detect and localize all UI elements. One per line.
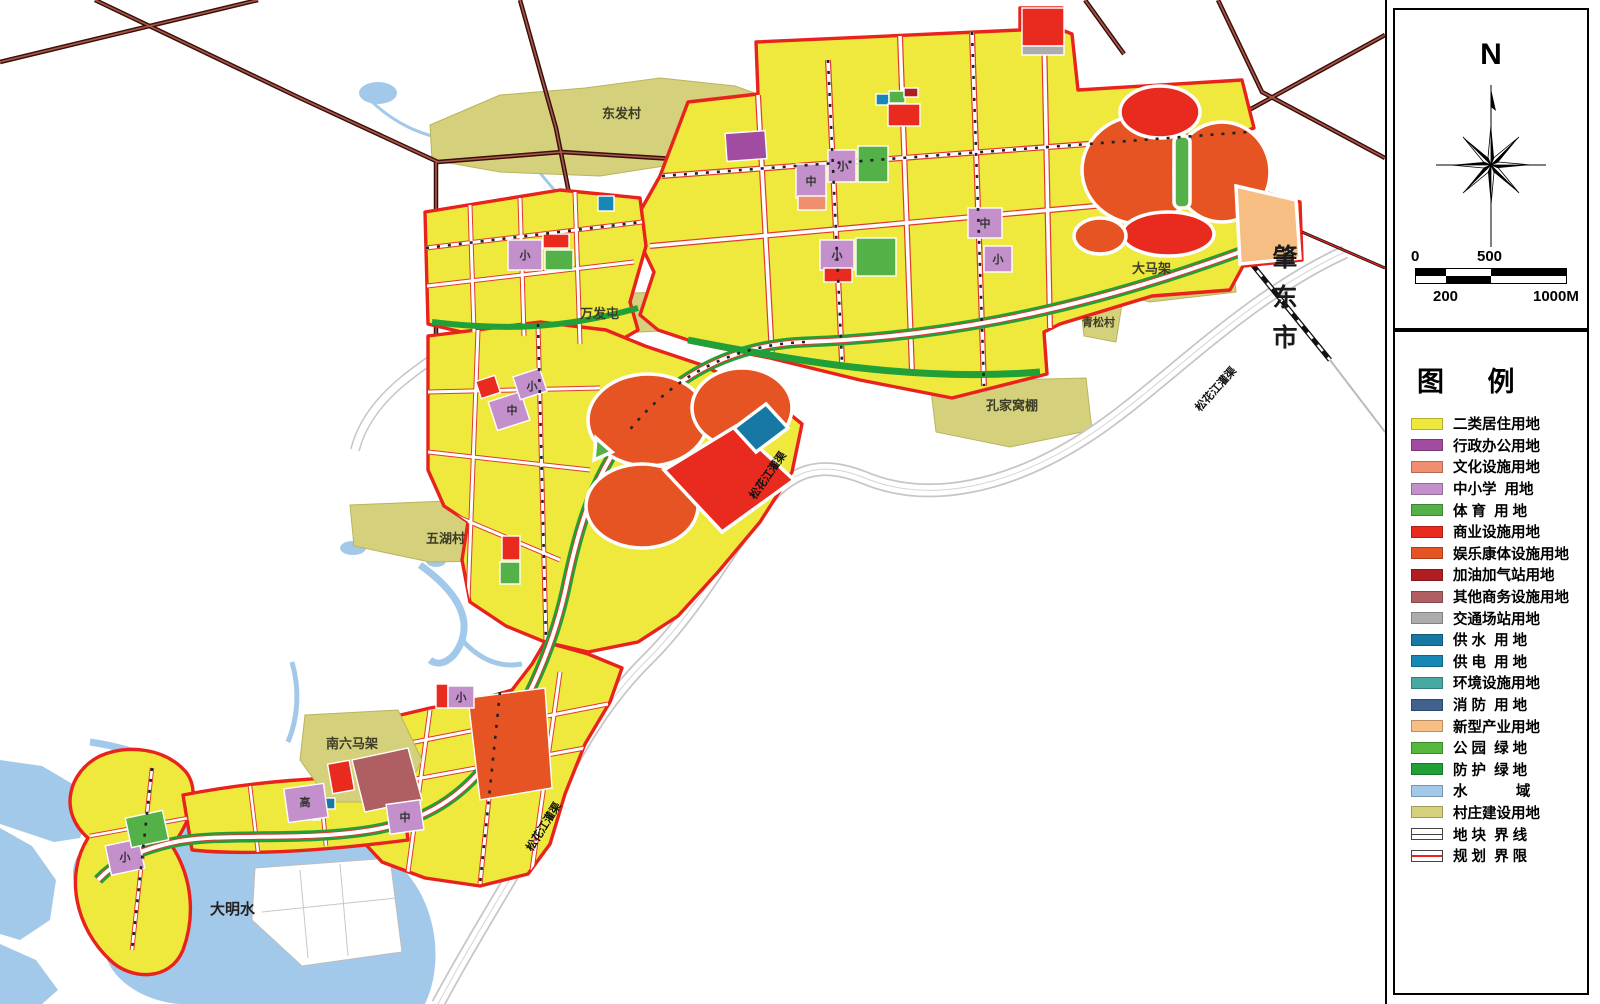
legend-label: 新型产业用地 [1453,716,1540,737]
legend-panel: 图 例 二类居住用地行政办公用地文化设施用地中小学 用地体 育 用 地商业设施用… [1393,330,1589,995]
label-qingsongcun: 青松村 [1082,315,1115,329]
north-scale-panel: N 0 500 [1393,8,1589,330]
label-kongjiawopeng: 孔家窝棚 [986,398,1038,413]
marker-middle: 中 [980,216,991,230]
scale-tick-1000: 1000M [1533,288,1579,305]
legend-item: 防 护 绿 地 [1411,759,1587,781]
legend-swatch [1411,634,1443,646]
legend-swatch [1411,526,1443,538]
legend-item: 娱乐康体设施用地 [1411,543,1587,565]
marker-primary: 小 [455,690,467,704]
legend-swatch [1411,418,1443,430]
legend-swatch [1411,828,1443,840]
compass-rose-icon [1426,80,1556,250]
marker-primary: 小 [519,248,531,262]
scale-tick-500: 500 [1477,248,1502,265]
marker-primary: 小 [119,850,131,864]
legend-label: 环境设施用地 [1453,672,1540,693]
scale-bar: 0 500 200 1000M [1415,248,1567,308]
label-nanliumajia: 南六马架 [326,736,378,751]
marker-middle: 中 [400,810,411,824]
legend-label: 文化设施用地 [1453,456,1540,477]
canal-label-2: 松花江灌渠 [1192,363,1240,414]
marker-primary: 小 [526,379,538,393]
scale-tick-200: 200 [1433,288,1458,305]
legend-item: 交通场站用地 [1411,607,1587,629]
label-damingshui: 大明水 [210,900,256,918]
legend-item: 消 防 用 地 [1411,694,1587,716]
legend-swatch [1411,547,1443,559]
legend-item: 供 电 用 地 [1411,651,1587,673]
legend-swatch [1411,677,1443,689]
city-name-label: 肇东市 [1268,238,1302,358]
legend-label: 供 电 用 地 [1453,651,1527,672]
label-dongfacun: 东发村 [602,106,641,121]
map-canvas: 东发村 万发屯 大马架 青松村 孔家窝棚 五湖村 南六马架 大明水 松花江灌渠 … [0,0,1385,1004]
legend-swatch [1411,504,1443,516]
legend-label: 商业设施用地 [1453,521,1540,542]
marker-high: 高 [300,795,311,809]
scale-tick-0: 0 [1411,248,1419,265]
label-damajia: 大马架 [1132,261,1171,276]
legend-item: 水 域 [1411,780,1587,802]
legend-swatch [1411,461,1443,473]
legend-swatch [1411,763,1443,775]
legend-item: 规 划 界 限 [1411,845,1587,867]
legend-label: 供 水 用 地 [1453,629,1527,650]
label-wanfatun: 万发屯 [579,306,619,321]
marker-middle: 中 [806,174,817,188]
legend-label: 规 划 界 限 [1453,845,1527,866]
legend-label: 其他商务设施用地 [1453,586,1569,607]
legend-label: 水 域 [1453,780,1530,801]
legend-swatch [1411,655,1443,667]
legend-label: 二类居住用地 [1453,413,1540,434]
legend-item: 环境设施用地 [1411,672,1587,694]
legend-item: 二类居住用地 [1411,413,1587,435]
legend-label: 消 防 用 地 [1453,694,1527,715]
planning-map-sheet: 东发村 万发屯 大马架 青松村 孔家窝棚 五湖村 南六马架 大明水 松花江灌渠 … [0,0,1600,1004]
legend-swatch [1411,591,1443,603]
legend-label: 防 护 绿 地 [1453,759,1527,780]
legend-item: 村庄建设用地 [1411,802,1587,824]
legend-item: 地 块 界 线 [1411,823,1587,845]
legend-label: 体 育 用 地 [1453,500,1527,521]
legend-items: 二类居住用地行政办公用地文化设施用地中小学 用地体 育 用 地商业设施用地娱乐康… [1411,413,1587,866]
marker-primary: 小 [831,248,843,262]
legend-label: 地 块 界 线 [1453,824,1527,845]
legend-swatch [1411,569,1443,581]
legend-item: 文化设施用地 [1411,456,1587,478]
legend-item: 加油加气站用地 [1411,564,1587,586]
legend-swatch [1411,483,1443,495]
legend-label: 行政办公用地 [1453,435,1540,456]
legend-label: 公 园 绿 地 [1453,737,1527,758]
legend-item: 行政办公用地 [1411,435,1587,457]
legend-item: 公 园 绿 地 [1411,737,1587,759]
blob-cluster-center [586,368,794,548]
legend-swatch [1411,785,1443,797]
legend-swatch [1411,612,1443,624]
legend-swatch [1411,806,1443,818]
sidebar: N 0 500 [1385,0,1600,1004]
legend-title: 图 例 [1417,360,1587,399]
legend-swatch [1411,720,1443,732]
legend-label: 娱乐康体设施用地 [1453,543,1569,564]
legend-label: 交通场站用地 [1453,608,1540,629]
legend-swatch [1411,742,1443,754]
legend-item: 体 育 用 地 [1411,499,1587,521]
legend-swatch [1411,850,1443,862]
marker-middle: 中 [507,403,518,417]
legend-item: 中小学 用地 [1411,478,1587,500]
legend-item: 供 水 用 地 [1411,629,1587,651]
marker-primary: 小 [992,252,1004,266]
legend-label: 加油加气站用地 [1453,564,1555,585]
marker-primary: 小 [837,159,849,173]
legend-swatch [1411,439,1443,451]
label-wuhucun: 五湖村 [426,531,465,546]
legend-label: 中小学 用地 [1453,478,1534,499]
scale-bar-graphic [1415,268,1567,284]
legend-item: 商业设施用地 [1411,521,1587,543]
legend-item: 新型产业用地 [1411,715,1587,737]
legend-item: 其他商务设施用地 [1411,586,1587,608]
north-label: N [1395,38,1587,72]
legend-label: 村庄建设用地 [1453,802,1540,823]
legend-swatch [1411,699,1443,711]
